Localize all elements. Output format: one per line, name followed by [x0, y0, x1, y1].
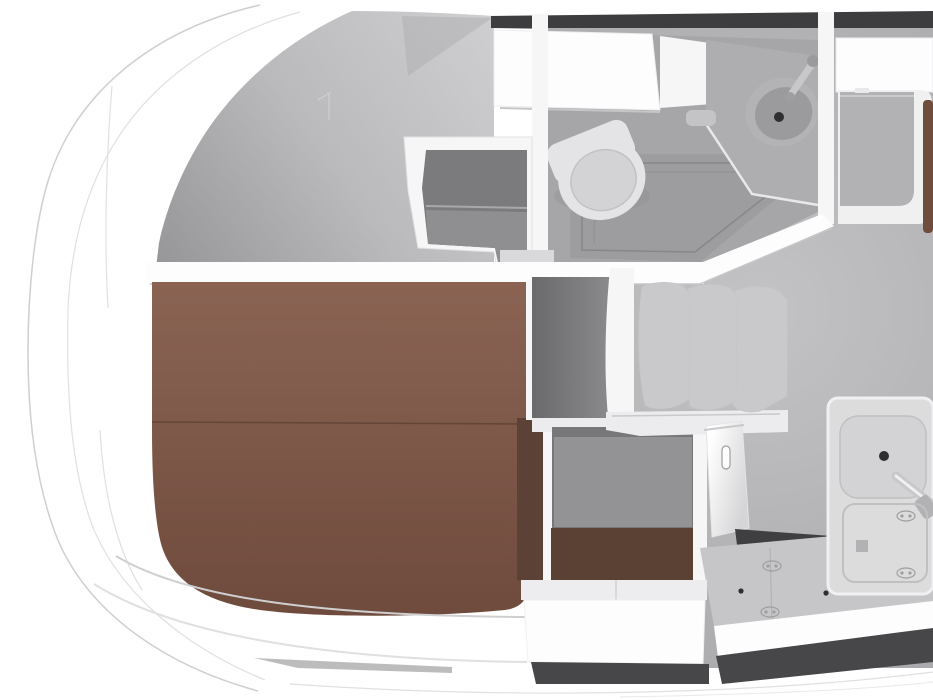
wardrobe-wood-door-trim [923, 100, 933, 233]
berth-side-shadow [517, 418, 543, 586]
seat-back-1 [639, 282, 690, 408]
latch-dot [908, 571, 911, 574]
basin-faucet-knob [807, 55, 819, 67]
companionway-frame [606, 268, 635, 434]
seat-back-2 [684, 284, 737, 409]
latch-dot [908, 514, 911, 517]
basin-drain [774, 112, 784, 122]
latch-dot [774, 564, 777, 567]
under-panel-wood [551, 528, 697, 586]
seat-back-3 [729, 287, 787, 412]
latch-dot [900, 514, 903, 517]
latch-dot [772, 610, 775, 613]
galley-sink-drain [879, 451, 889, 461]
footwell-panel [553, 428, 693, 528]
basin-faucet-base [785, 92, 795, 102]
galley-sink-unit [828, 398, 933, 594]
latch-dot [900, 571, 903, 574]
soap-dish [686, 110, 716, 126]
wardrobe-cabinet-top [836, 38, 933, 92]
hull-cut-band-bottom-middle [531, 662, 709, 684]
latch-dot [764, 610, 767, 613]
bathroom-forward-wall [532, 14, 548, 270]
locker-cabinet [706, 421, 749, 537]
yacht-floorplan-svg [0, 0, 933, 700]
floorplan-render [0, 0, 933, 700]
bathroom-aft-wall [818, 12, 834, 224]
wardrobe-shelf-floor [840, 92, 914, 206]
bench-top [521, 580, 707, 600]
wardrobe-hinge-tab [855, 88, 869, 93]
island-berth-mattress [152, 282, 527, 616]
locker-handle [722, 446, 730, 469]
latch-dot [766, 564, 769, 567]
bathroom-overhead-cabinet [494, 30, 660, 110]
bench-front [524, 600, 705, 664]
worktop-fastener-dot [738, 588, 743, 593]
worktop-fastener-dot [823, 590, 828, 595]
burner-icon [856, 540, 868, 552]
companionway-recess [532, 277, 612, 419]
